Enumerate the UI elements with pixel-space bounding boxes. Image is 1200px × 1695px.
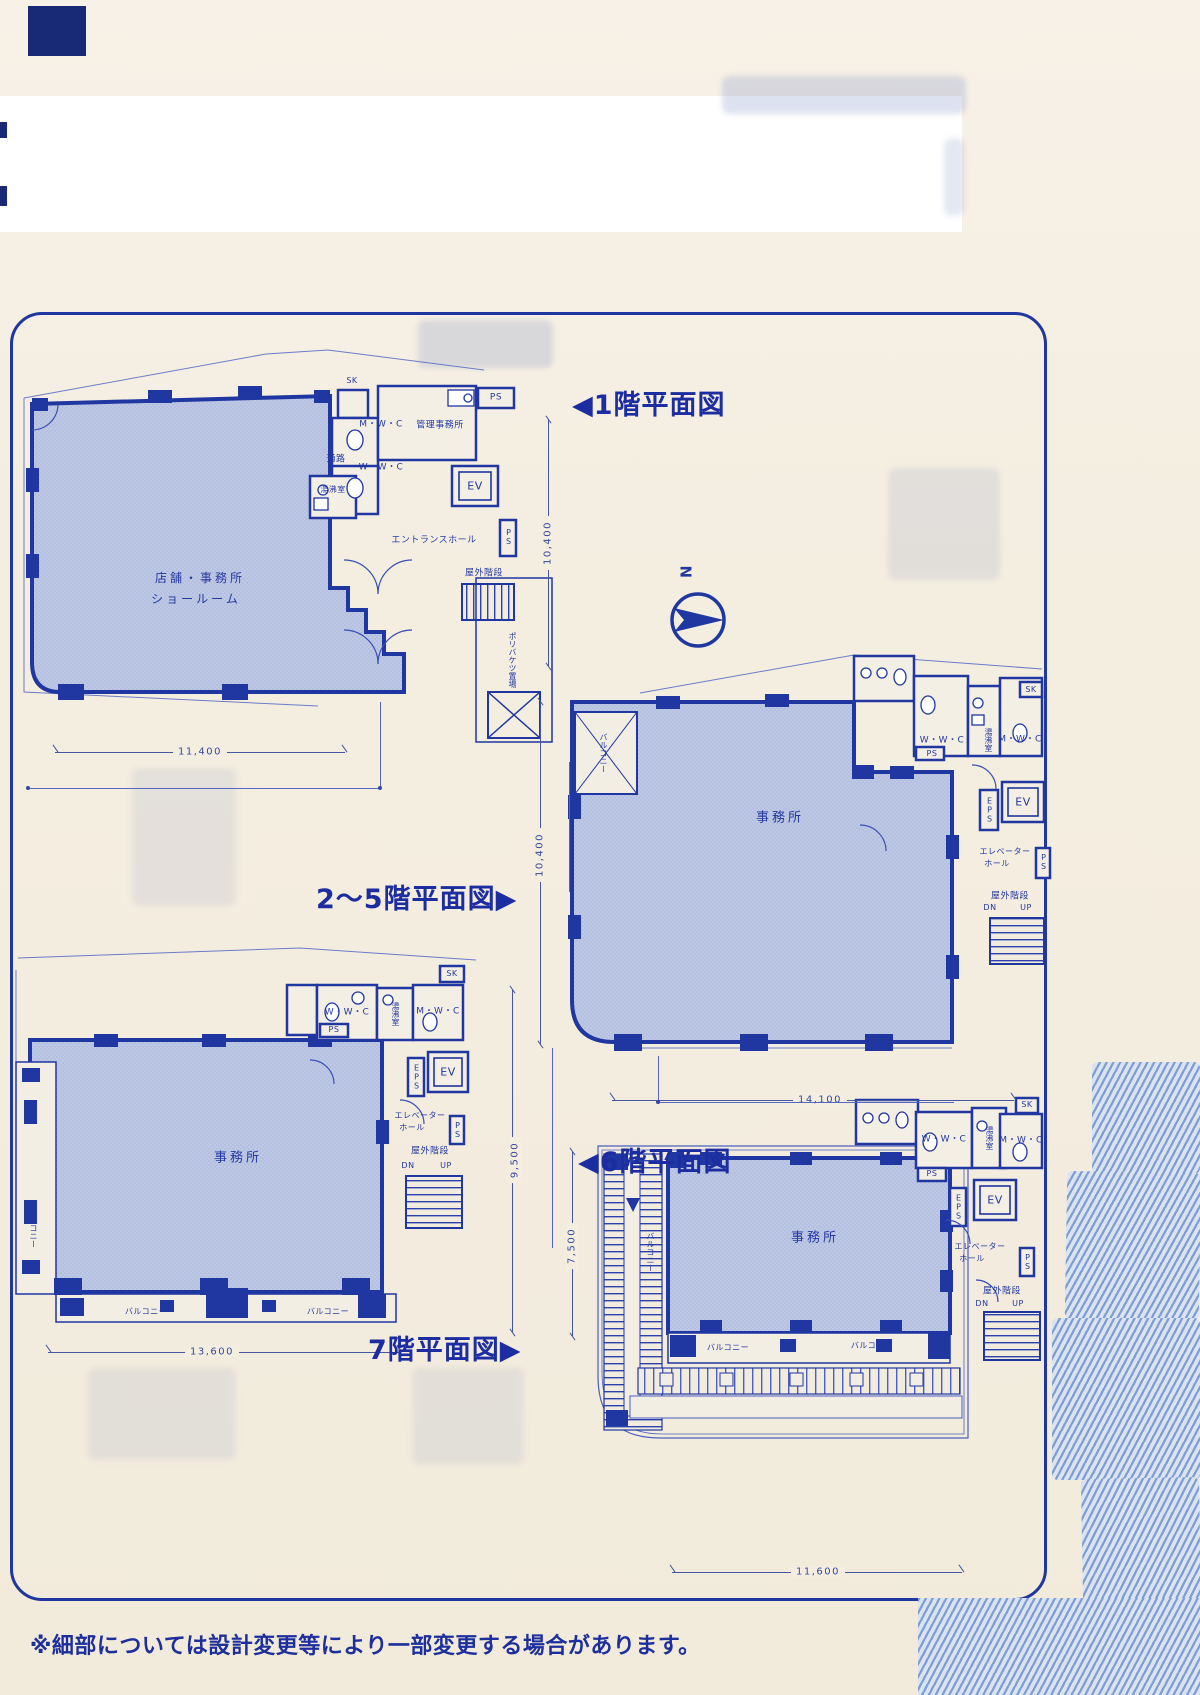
stripe-pattern <box>1092 1062 1200 1174</box>
guide-dot <box>26 786 30 790</box>
stripe-pattern <box>1081 1477 1200 1603</box>
f1-label-wwc: W・W・C <box>359 464 404 473</box>
f25-label-dn: DN <box>983 904 996 912</box>
f1-label-yuwakashi: 湯沸室 <box>320 486 346 494</box>
f1-label-tsuro: 通路 <box>326 456 345 465</box>
f1-label-entrance: エントランスホール <box>391 537 476 546</box>
print-ghost <box>722 76 966 114</box>
stripe-pattern <box>1065 1171 1200 1321</box>
f6-balcony-left <box>16 1062 56 1294</box>
f6-height-dim: 9,500 <box>510 1137 521 1183</box>
guide-line <box>658 1056 659 1104</box>
f25-label-ev: EV <box>1015 797 1030 808</box>
f7-label-eps: EPS <box>954 1194 962 1221</box>
guide-dot <box>656 1100 660 1104</box>
f6-label-elv2: ホール <box>399 1124 425 1132</box>
corner-navy-block <box>28 6 86 56</box>
f6-label-eps: EPS <box>412 1064 420 1091</box>
brochure-page: SK M・W・C 管理事務所 PS 通路 W・W・C 湯沸室 EV エントランス… <box>0 0 1200 1695</box>
f7-label-ps: PS <box>927 1170 938 1178</box>
f7-label-elv1: エレベーター <box>955 1243 1006 1251</box>
f25-label-stairs: 屋外階段 <box>991 893 1029 902</box>
north-label: N <box>678 565 693 578</box>
f25-label-sk: SK <box>1025 686 1036 694</box>
f7-label-sk: SK <box>1021 1101 1032 1109</box>
f6-label-dn: DN <box>401 1162 414 1170</box>
f1-label-ps: PS <box>490 394 502 403</box>
f25-drawing <box>560 645 1050 1065</box>
f6-office-room <box>30 1040 382 1292</box>
f6-label-wwc: W・W・C <box>325 1009 370 1018</box>
f1-height-dim: 10,400 <box>543 516 554 570</box>
f7-label-yuwakashi: 湯沸室 <box>985 1126 993 1150</box>
f6-label-office: 事務所 <box>214 1152 262 1165</box>
f6-label-sk: SK <box>446 970 457 978</box>
f7-label-wwc: W・W・C <box>922 1136 967 1145</box>
guide-line <box>380 702 381 788</box>
north-arrow-icon <box>650 548 750 652</box>
stripe-pattern <box>1052 1318 1200 1480</box>
f6-label-elv1: エレベーター <box>395 1112 446 1120</box>
band-notch-2 <box>0 186 7 206</box>
f6-label-balcony-b1: バルコニー <box>125 1308 167 1316</box>
f7-office-room <box>668 1158 950 1333</box>
f7-label-ev: EV <box>987 1195 1002 1206</box>
f7-label-office: 事務所 <box>791 1232 839 1245</box>
f1-label-shop2: ショールーム <box>151 593 241 605</box>
f1-label-shop1: 店舗・事務所 <box>155 572 245 584</box>
f6-label-balcony-left: バルコニー <box>29 1208 37 1248</box>
f6-outdoor-stairs <box>406 1176 462 1228</box>
f25-width-dim: 14,100 <box>793 1095 847 1106</box>
f7-label-balcony-b1: バルコニー <box>707 1344 749 1352</box>
print-ghost <box>944 138 964 216</box>
f7-label-stairs: 屋外階段 <box>983 1288 1021 1297</box>
guide-line <box>569 762 570 892</box>
f6-label-yuwakashi: 湯沸室 <box>391 1002 399 1026</box>
f25-label-elv2: ホール <box>984 860 1010 868</box>
f1-service-rooms <box>310 386 516 556</box>
title-floor1: ◀1階平面図 <box>572 383 726 422</box>
guide-dot <box>378 786 382 790</box>
f1-label-ps-shaft: PS <box>504 528 512 546</box>
f7-label-elv2: ホール <box>959 1255 985 1263</box>
f25-label-ps-shaft: PS <box>1039 853 1047 871</box>
f25-label-ps: PS <box>927 750 938 758</box>
f7-label-dn: DN <box>975 1300 988 1308</box>
f6-label-stairs: 屋外階段 <box>411 1148 449 1157</box>
f1-label-stairs: 屋外階段 <box>465 570 503 579</box>
f1-label-ev: EV <box>467 481 482 492</box>
f6-width-dim: 13,600 <box>185 1347 239 1358</box>
f1-width-dim: 11,400 <box>173 747 227 758</box>
f7-height-dim: 7,500 <box>567 1223 578 1269</box>
f1-label-bucket: ポリバケツ置場 <box>508 632 516 688</box>
f25-label-balcony: バルコニー <box>599 733 607 773</box>
f7-outdoor-stairs <box>984 1312 1040 1360</box>
f7-width-dim: 11,600 <box>791 1567 845 1578</box>
f7-label-ps-shaft: PS <box>1023 1253 1031 1271</box>
f25-label-eps: EPS <box>985 797 993 824</box>
title-floor2-5: 2〜5階平面図▶ <box>316 877 517 916</box>
f6-label-ps-shaft: PS <box>453 1121 461 1139</box>
f6-label-ev: EV <box>440 1067 455 1078</box>
f6-label-up: UP <box>440 1162 452 1170</box>
f25-label-yuwakashi: 湯沸室 <box>984 728 992 752</box>
f25-label-elv1: エレベーター <box>980 848 1031 856</box>
f1-outdoor-stairs <box>462 584 514 620</box>
f7-label-balcony-b2: バルコニー <box>851 1342 893 1350</box>
f25-label-office: 事務所 <box>756 812 804 825</box>
f6-label-mwc: M・W・C <box>416 1008 459 1017</box>
f7-label-balcony-left: バルコニー <box>646 1232 654 1272</box>
f1-label-sk: SK <box>346 377 357 385</box>
title-floor7: 7階平面図▶ <box>368 1328 522 1367</box>
guide-line <box>658 1102 954 1103</box>
f1-drawing <box>18 340 558 760</box>
f25-label-up: UP <box>1020 904 1032 912</box>
f25-height-dim: 10,400 <box>535 828 546 882</box>
footnote: ※細部については設計変更等により一部変更する場合があります。 <box>30 1628 701 1660</box>
f7-label-up: UP <box>1012 1300 1024 1308</box>
guide-line <box>552 1048 553 1248</box>
guide-line <box>28 788 380 789</box>
f25-label-mwc: M・W・C <box>998 736 1041 745</box>
f6-label-ps: PS <box>329 1026 340 1034</box>
f25-label-wwc: W・W・C <box>920 737 965 746</box>
band-notch-1 <box>0 122 7 138</box>
white-band <box>0 96 962 232</box>
f1-label-mwc: M・W・C <box>359 421 402 430</box>
f6-label-balcony-b2: バルコニー <box>307 1308 349 1316</box>
stripe-pattern <box>918 1598 1200 1695</box>
f1-label-kanri: 管理事務所 <box>416 422 464 431</box>
f25-outdoor-stairs <box>990 918 1044 964</box>
f7-label-mwc: M・W・C <box>999 1137 1042 1146</box>
title-floor6: ◀6階平面図 <box>578 1140 732 1179</box>
